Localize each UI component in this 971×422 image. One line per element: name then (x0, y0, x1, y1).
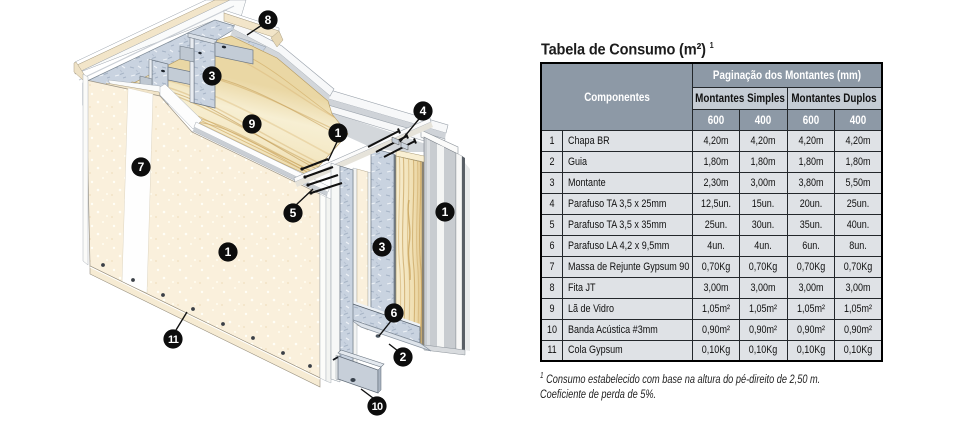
svg-text:5: 5 (290, 206, 297, 220)
svg-text:4: 4 (420, 104, 427, 118)
svg-text:2: 2 (400, 350, 407, 364)
svg-text:1: 1 (335, 126, 342, 140)
svg-text:3: 3 (209, 69, 216, 83)
svg-text:10: 10 (372, 401, 383, 413)
svg-text:6: 6 (391, 306, 398, 320)
svg-text:1: 1 (225, 245, 232, 259)
svg-text:3: 3 (379, 240, 386, 254)
svg-text:7: 7 (138, 160, 145, 174)
svg-text:1: 1 (442, 205, 449, 219)
svg-text:9: 9 (249, 117, 256, 131)
svg-text:8: 8 (265, 13, 272, 27)
svg-text:11: 11 (168, 334, 179, 346)
